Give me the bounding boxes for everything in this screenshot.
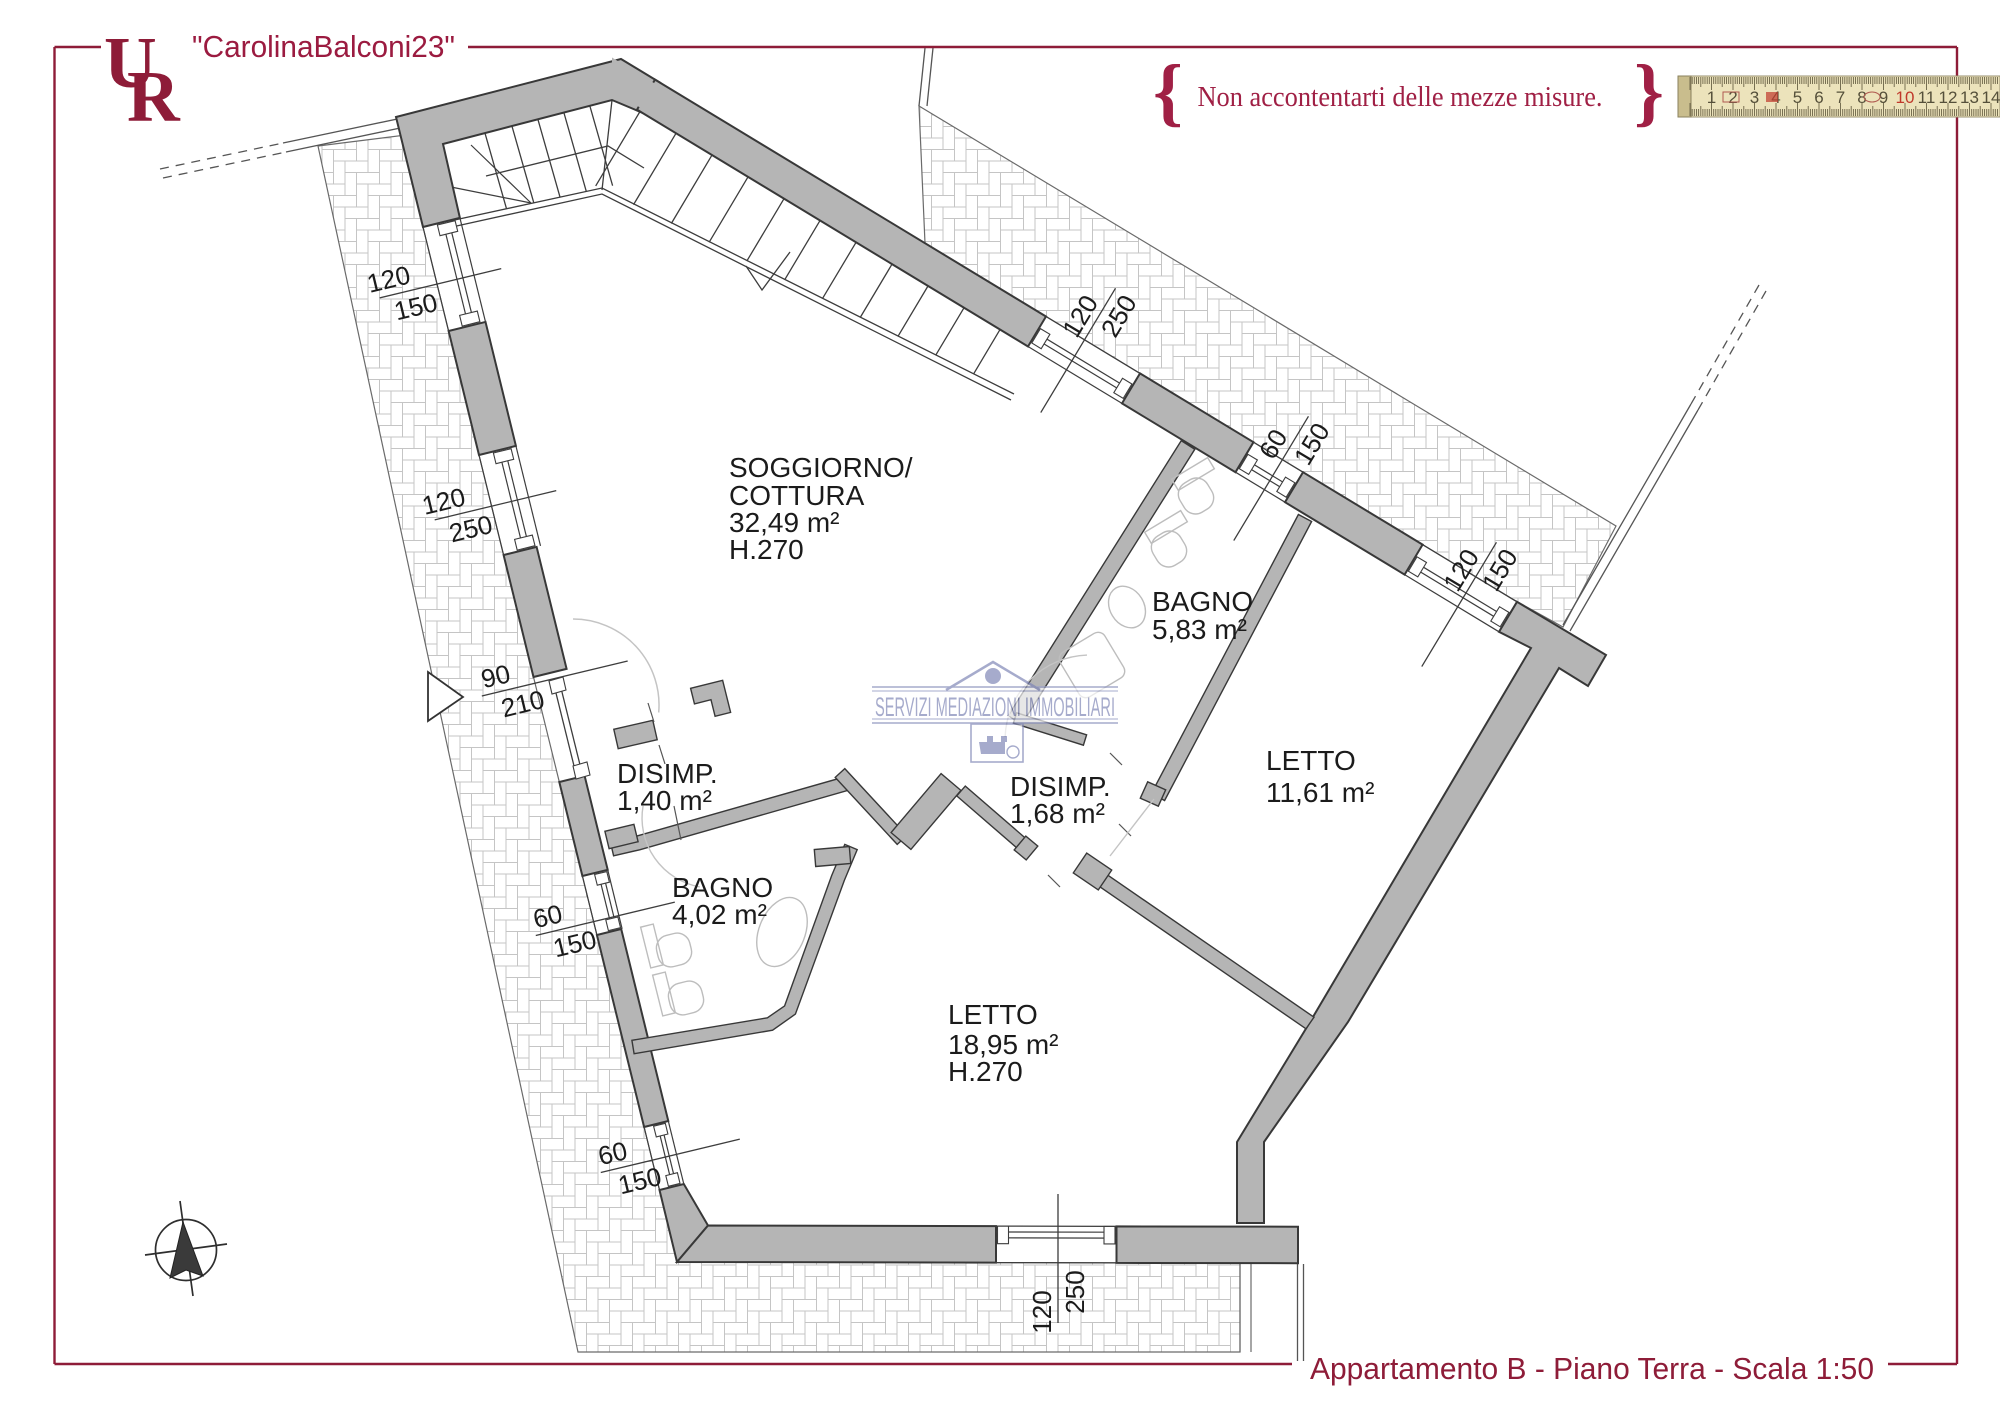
svg-text:H.270: H.270 — [948, 1056, 1023, 1087]
svg-text:14: 14 — [1982, 88, 2000, 107]
svg-text:4,02 m²: 4,02 m² — [672, 899, 767, 930]
svg-text:1,68 m²: 1,68 m² — [1010, 798, 1105, 829]
svg-text:5,83 m²: 5,83 m² — [1152, 614, 1247, 645]
svg-text:SERVIZI MEDIAZIONI IMMOBILIARI: SERVIZI MEDIAZIONI IMMOBILIARI — [875, 692, 1115, 722]
svg-text:13: 13 — [1960, 88, 1979, 107]
svg-text:3: 3 — [1750, 88, 1759, 107]
svg-text:SOGGIORNO/: SOGGIORNO/ — [729, 452, 913, 483]
svg-text:12: 12 — [1939, 88, 1958, 107]
svg-text:Appartamento B - Piano Terra -: Appartamento B - Piano Terra - Scala 1:5… — [1310, 1351, 1874, 1386]
svg-text:H.270: H.270 — [729, 534, 804, 565]
svg-text:10: 10 — [1896, 88, 1915, 107]
svg-text:R: R — [127, 56, 181, 137]
svg-text:"CarolinaBalconi23": "CarolinaBalconi23" — [192, 29, 455, 64]
svg-text:11: 11 — [1918, 88, 1936, 107]
svg-text:}: } — [1634, 50, 1664, 134]
svg-text:{: { — [1153, 50, 1183, 134]
svg-text:BAGNO: BAGNO — [1152, 586, 1253, 617]
svg-text:120: 120 — [1027, 1290, 1057, 1333]
svg-text:2: 2 — [1728, 88, 1737, 107]
svg-text:8: 8 — [1857, 88, 1866, 107]
svg-text:1: 1 — [1707, 88, 1716, 107]
svg-text:LETTO: LETTO — [1266, 745, 1356, 776]
svg-text:11,61 m²: 11,61 m² — [1266, 777, 1374, 808]
svg-text:250: 250 — [1060, 1270, 1090, 1313]
svg-text:1,40 m²: 1,40 m² — [617, 785, 712, 816]
svg-text:7: 7 — [1836, 88, 1845, 107]
svg-text:6: 6 — [1814, 88, 1823, 107]
svg-text:Non accontentarti delle mezze: Non accontentarti delle mezze misure. — [1198, 82, 1603, 113]
svg-text:LETTO: LETTO — [948, 999, 1038, 1030]
svg-text:5: 5 — [1793, 88, 1802, 107]
